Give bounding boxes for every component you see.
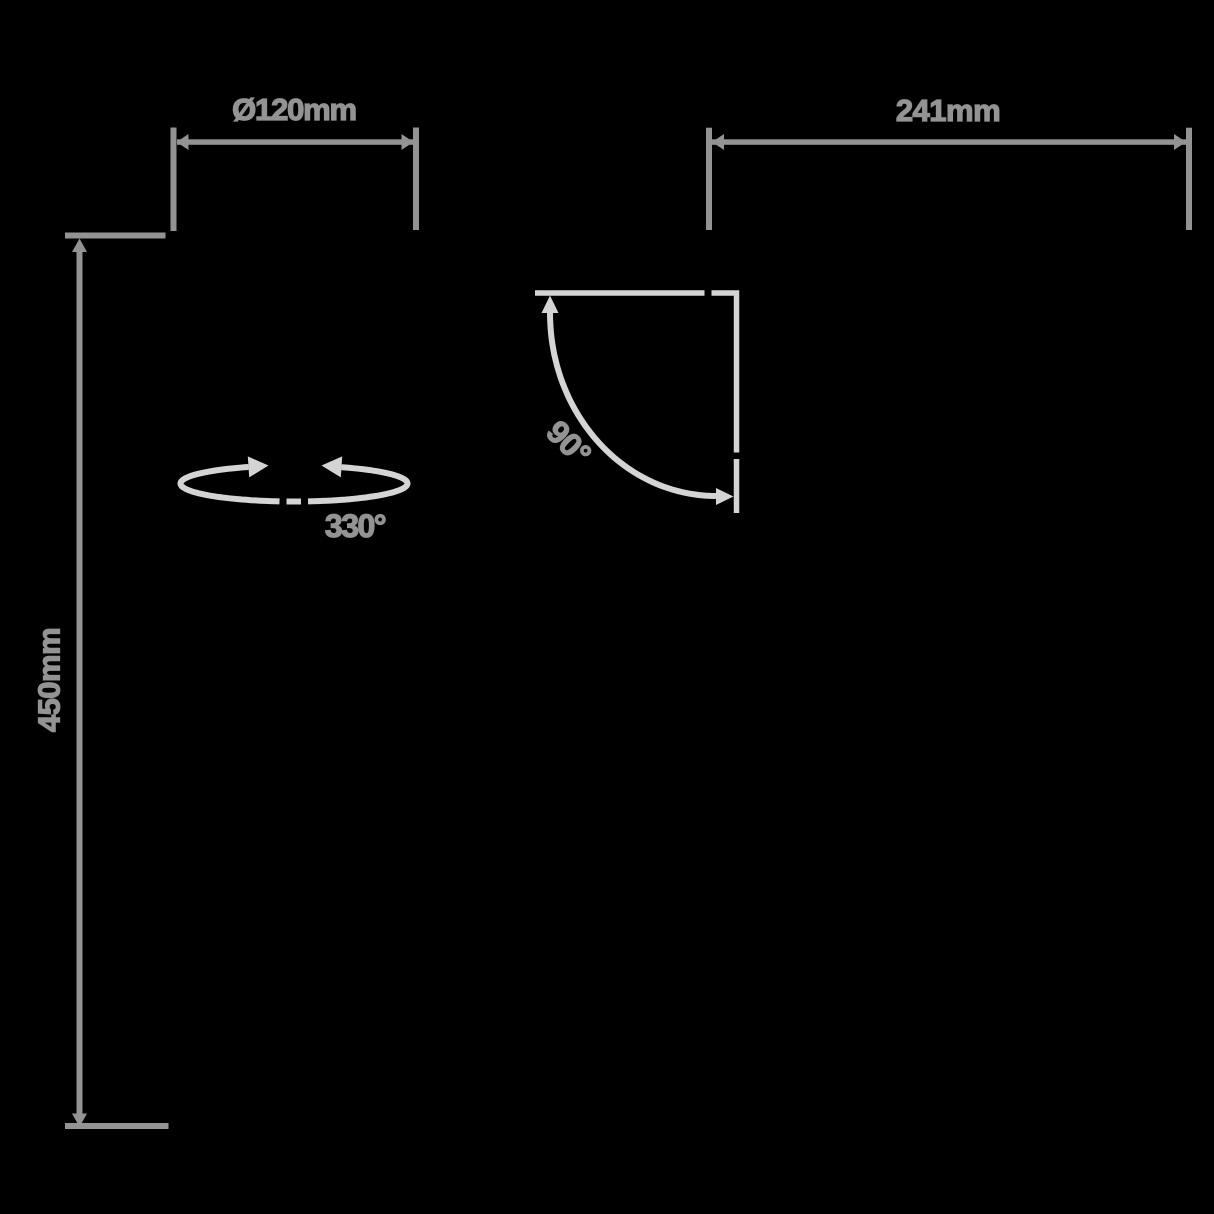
- svg-text:Ø120mm: Ø120mm: [232, 92, 356, 127]
- svg-text:450mm: 450mm: [32, 628, 67, 732]
- svg-text:330°: 330°: [325, 508, 386, 544]
- svg-text:241mm: 241mm: [896, 93, 1000, 128]
